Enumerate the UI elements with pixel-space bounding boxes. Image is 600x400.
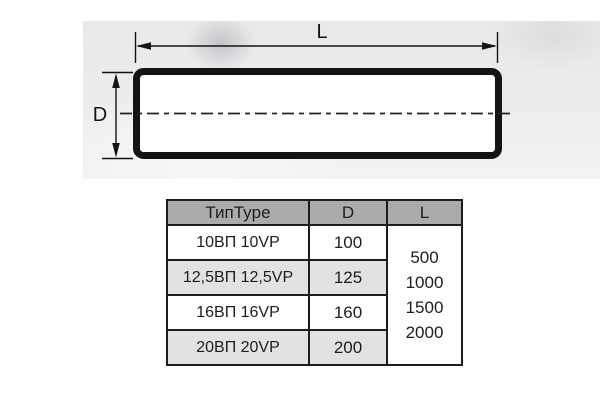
l-value: 1500 (388, 295, 461, 320)
cell-type: 10ВП 10VP (167, 225, 309, 260)
arrowhead-right-icon (482, 42, 497, 50)
cell-type: 20ВП 20VP (167, 330, 309, 365)
header-cell-l: L (387, 200, 462, 225)
diameter-label: D (93, 104, 107, 126)
l-merged-cell: 500 1000 1500 2000 (387, 225, 462, 365)
cell-type: 12,5ВП 12,5VP (167, 260, 309, 295)
table-header-row: ТипType D L (167, 200, 462, 225)
l-value: 1000 (388, 270, 461, 295)
arrowhead-left-icon (136, 42, 151, 50)
header-cell-type: ТипType (167, 200, 309, 225)
l-value: 500 (388, 245, 461, 270)
length-label: L (316, 21, 327, 43)
cell-d: 200 (309, 330, 387, 365)
page: L D ТипType D L 10ВП 10VP 100 500 1000 1… (0, 0, 600, 400)
arrowhead-up-icon (112, 74, 120, 89)
cell-d: 160 (309, 295, 387, 330)
cell-type: 16ВП 16VP (167, 295, 309, 330)
duct-drawing: L D (0, 0, 600, 190)
arrowhead-down-icon (112, 143, 120, 158)
spec-table: ТипType D L 10ВП 10VP 100 500 1000 1500 … (166, 199, 463, 366)
header-cell-d: D (309, 200, 387, 225)
cell-d: 100 (309, 225, 387, 260)
spec-table-wrap: ТипType D L 10ВП 10VP 100 500 1000 1500 … (166, 199, 463, 366)
l-value: 2000 (388, 320, 461, 345)
cell-d: 125 (309, 260, 387, 295)
table-row: 10ВП 10VP 100 500 1000 1500 2000 (167, 225, 462, 260)
